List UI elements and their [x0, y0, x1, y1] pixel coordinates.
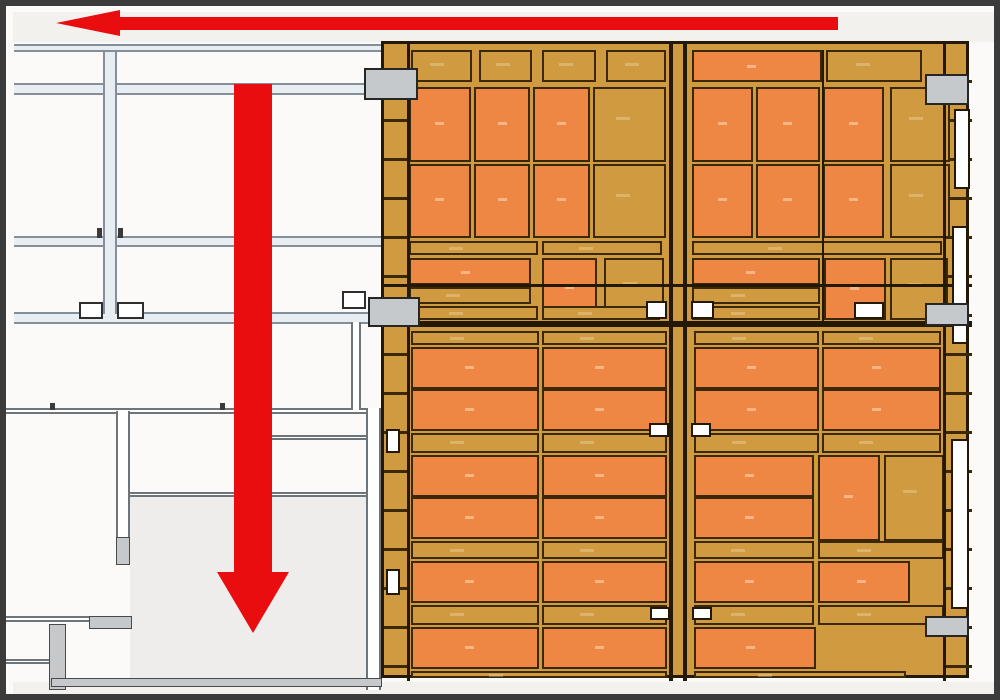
small-equipment-box	[79, 302, 103, 319]
empty-slot	[691, 301, 714, 319]
wall-horizontal	[6, 616, 92, 622]
empty-slot	[952, 226, 968, 344]
pallet	[694, 347, 819, 389]
empty-slot	[692, 607, 712, 620]
structural-column	[364, 68, 418, 100]
empty-slot	[649, 423, 669, 437]
aisle-line-vertical	[669, 44, 673, 681]
pallet-storage-area	[381, 41, 969, 678]
pallet	[822, 347, 941, 389]
wall-horizontal	[269, 435, 379, 440]
structural-column	[925, 303, 969, 326]
pallet	[409, 306, 538, 320]
pallet	[692, 164, 753, 238]
pallet	[411, 671, 667, 678]
pallet	[411, 389, 539, 431]
pallet	[474, 164, 530, 238]
pallet	[694, 389, 819, 431]
wall-solid-segment	[51, 678, 382, 687]
arrow-left-head-icon	[56, 10, 120, 36]
pallet	[694, 455, 814, 497]
pallet	[542, 50, 596, 82]
aisle-line-vertical	[943, 44, 946, 681]
pallet	[694, 671, 906, 678]
pallet	[694, 627, 816, 669]
pallet	[479, 50, 532, 82]
pallet	[694, 605, 814, 625]
pallet	[409, 241, 538, 255]
pallet	[411, 50, 472, 82]
rack-line-horizontal	[384, 321, 972, 327]
small-equipment-box	[117, 302, 144, 319]
empty-slot	[954, 109, 970, 189]
empty-slot	[854, 302, 884, 319]
empty-slot	[650, 607, 670, 620]
empty-slot	[951, 439, 969, 609]
pallet	[593, 87, 666, 162]
grid-tick	[97, 228, 102, 238]
steel-beam-horizontal	[14, 83, 383, 95]
pallet	[411, 347, 539, 389]
pallet	[542, 627, 667, 669]
warehouse-plan-canvas	[0, 0, 1000, 700]
pallet	[822, 389, 941, 431]
pallet	[694, 497, 814, 539]
empty-slot	[386, 569, 400, 595]
pallet	[542, 497, 667, 539]
pallet	[818, 541, 944, 559]
rack-line-horizontal	[384, 284, 972, 287]
aisle-line-vertical	[683, 44, 687, 681]
pallet	[692, 87, 753, 162]
pallet	[474, 87, 530, 162]
steel-beam-horizontal	[14, 236, 383, 247]
steel-beam-horizontal	[14, 44, 383, 52]
pallet	[890, 164, 950, 238]
pallet	[692, 241, 942, 255]
pallet	[756, 87, 820, 162]
pallet	[823, 164, 884, 238]
pallet	[411, 497, 539, 539]
wall-vertical	[351, 322, 361, 410]
pallet	[593, 164, 666, 238]
pallet	[542, 605, 667, 625]
pallet	[409, 87, 471, 162]
empty-slot	[691, 423, 711, 437]
pallet	[818, 561, 910, 603]
wall-horizontal	[6, 659, 54, 664]
structural-column	[925, 616, 969, 637]
small-equipment-box	[342, 291, 366, 309]
pallet	[411, 541, 539, 559]
steel-beam-vertical	[103, 52, 117, 314]
pallet	[411, 561, 539, 603]
pallet	[826, 50, 922, 82]
pallet	[694, 433, 819, 453]
wall-solid-segment	[89, 616, 132, 629]
pallet	[822, 433, 941, 453]
pallet	[694, 331, 819, 345]
aisle-line-vertical	[407, 44, 410, 681]
pallet	[542, 455, 667, 497]
grid-tick	[50, 403, 55, 410]
pallet	[411, 455, 539, 497]
grid-tick	[220, 403, 225, 410]
flow-arrow-left-shaft	[118, 17, 838, 30]
grid-tick	[118, 228, 123, 238]
pallet	[411, 627, 539, 669]
wall-solid-segment	[116, 537, 130, 565]
structural-column	[925, 74, 969, 105]
pallet	[542, 541, 667, 559]
flow-arrow-down-shaft	[234, 84, 272, 576]
pallet	[694, 541, 814, 559]
pallet	[411, 605, 539, 625]
structural-column	[368, 297, 420, 327]
steel-beam-horizontal	[14, 312, 383, 324]
pallet	[542, 347, 667, 389]
pallet	[409, 287, 531, 304]
pallet	[884, 455, 944, 541]
pallet	[823, 87, 884, 162]
pallet	[692, 50, 822, 82]
pallet	[818, 455, 880, 541]
wall-vertical	[366, 408, 381, 690]
pallet	[533, 87, 590, 162]
pallet	[756, 164, 820, 238]
pallet	[409, 164, 471, 238]
pallet	[409, 258, 531, 285]
pallet	[694, 561, 814, 603]
empty-slot	[646, 301, 667, 319]
arrow-down-head-icon	[217, 572, 289, 633]
pallet	[606, 50, 666, 82]
pallet	[533, 164, 590, 238]
wall-horizontal	[6, 408, 380, 414]
pallet	[542, 331, 667, 345]
pallet	[692, 258, 820, 285]
pallet	[542, 241, 662, 255]
aisle-line-vertical	[822, 50, 824, 322]
pallet	[411, 331, 539, 345]
empty-slot	[386, 429, 400, 453]
pallet	[822, 331, 941, 345]
pallet	[542, 561, 667, 603]
pallet	[411, 433, 539, 453]
pallet	[542, 306, 660, 320]
